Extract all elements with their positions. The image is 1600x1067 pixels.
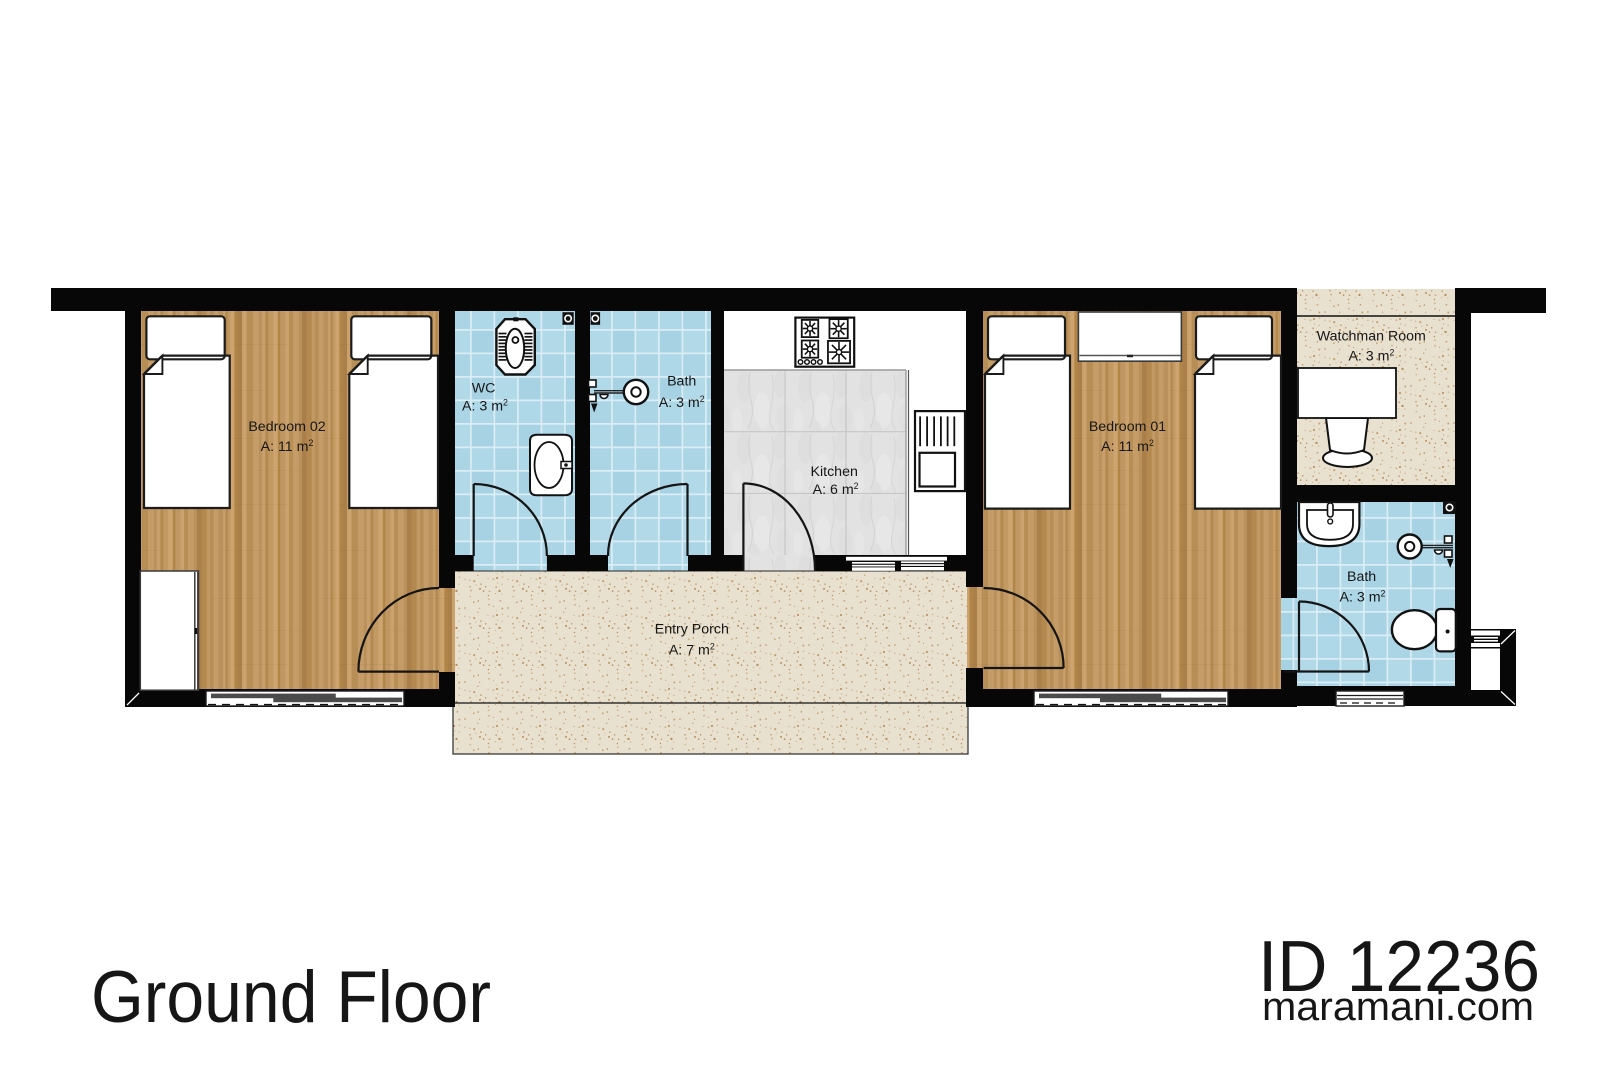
- svg-text:A: 3 m2: A: 3 m2: [1348, 348, 1394, 365]
- svg-text:A: 11 m2: A: 11 m2: [261, 438, 314, 455]
- svg-text:A: 3 m2: A: 3 m2: [659, 394, 705, 411]
- svg-text:A: 7 m2: A: 7 m2: [669, 642, 715, 659]
- svg-text:Ground Floor: Ground Floor: [91, 955, 491, 1038]
- svg-text:A: 3 m2: A: 3 m2: [1340, 589, 1386, 606]
- svg-text:Bedroom 02: Bedroom 02: [248, 419, 325, 435]
- svg-text:Bedroom 01: Bedroom 01: [1089, 419, 1166, 435]
- svg-text:WC: WC: [472, 381, 496, 397]
- svg-text:Bath: Bath: [667, 374, 696, 390]
- svg-text:Watchman Room: Watchman Room: [1317, 328, 1426, 344]
- svg-text:Entry Porch: Entry Porch: [655, 621, 729, 637]
- svg-text:Bath: Bath: [1347, 569, 1376, 585]
- svg-text:A: 6 m2: A: 6 m2: [813, 481, 859, 498]
- svg-text:maramani.com: maramani.com: [1262, 985, 1534, 1029]
- svg-text:A: 11 m2: A: 11 m2: [1101, 438, 1154, 455]
- svg-text:Kitchen: Kitchen: [811, 464, 858, 480]
- svg-text:A: 3 m2: A: 3 m2: [462, 398, 508, 415]
